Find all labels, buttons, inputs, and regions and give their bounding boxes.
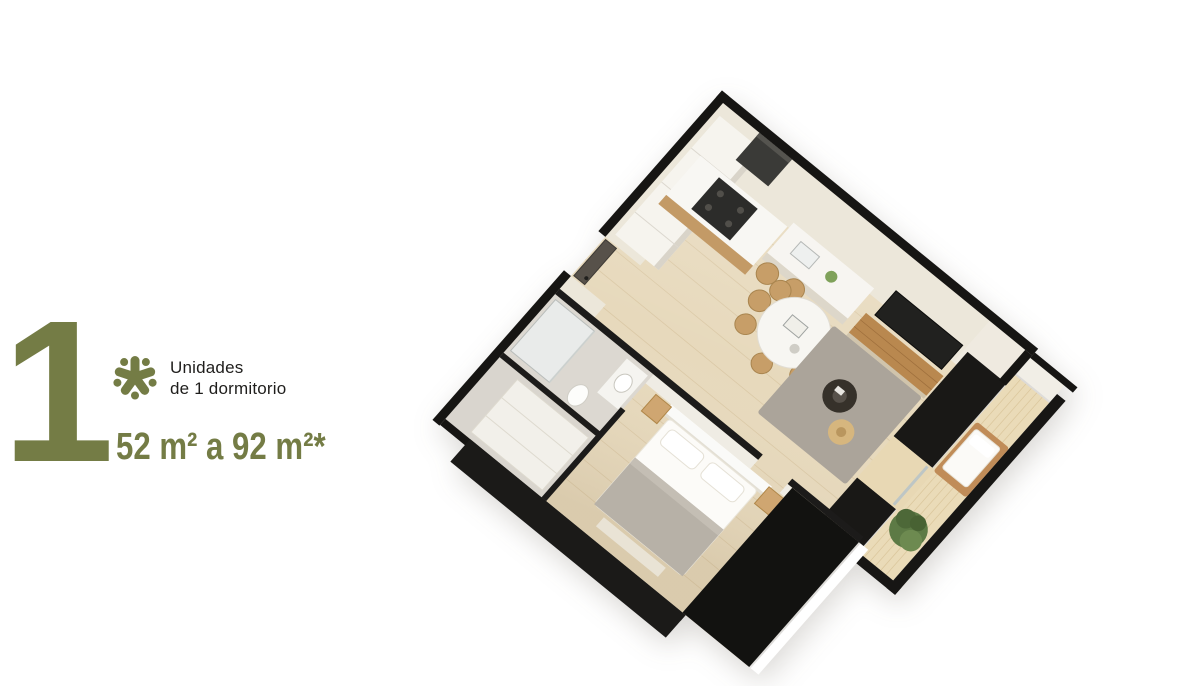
floorplan-render	[390, 55, 1130, 686]
unit-number: 1	[2, 290, 110, 492]
unit-type-label: Unidades de 1 dormitorio	[170, 357, 286, 399]
area-range-text: 52 m² a 92 m²*	[116, 428, 326, 466]
asterisk-star-icon	[110, 352, 160, 402]
page: 1 Unidades de 1 dormitorio 52 m² a 92 m²…	[0, 0, 1200, 686]
unit-type-label-line2: de 1 dormitorio	[170, 378, 286, 399]
unit-type-label-line1: Unidades	[170, 357, 286, 378]
